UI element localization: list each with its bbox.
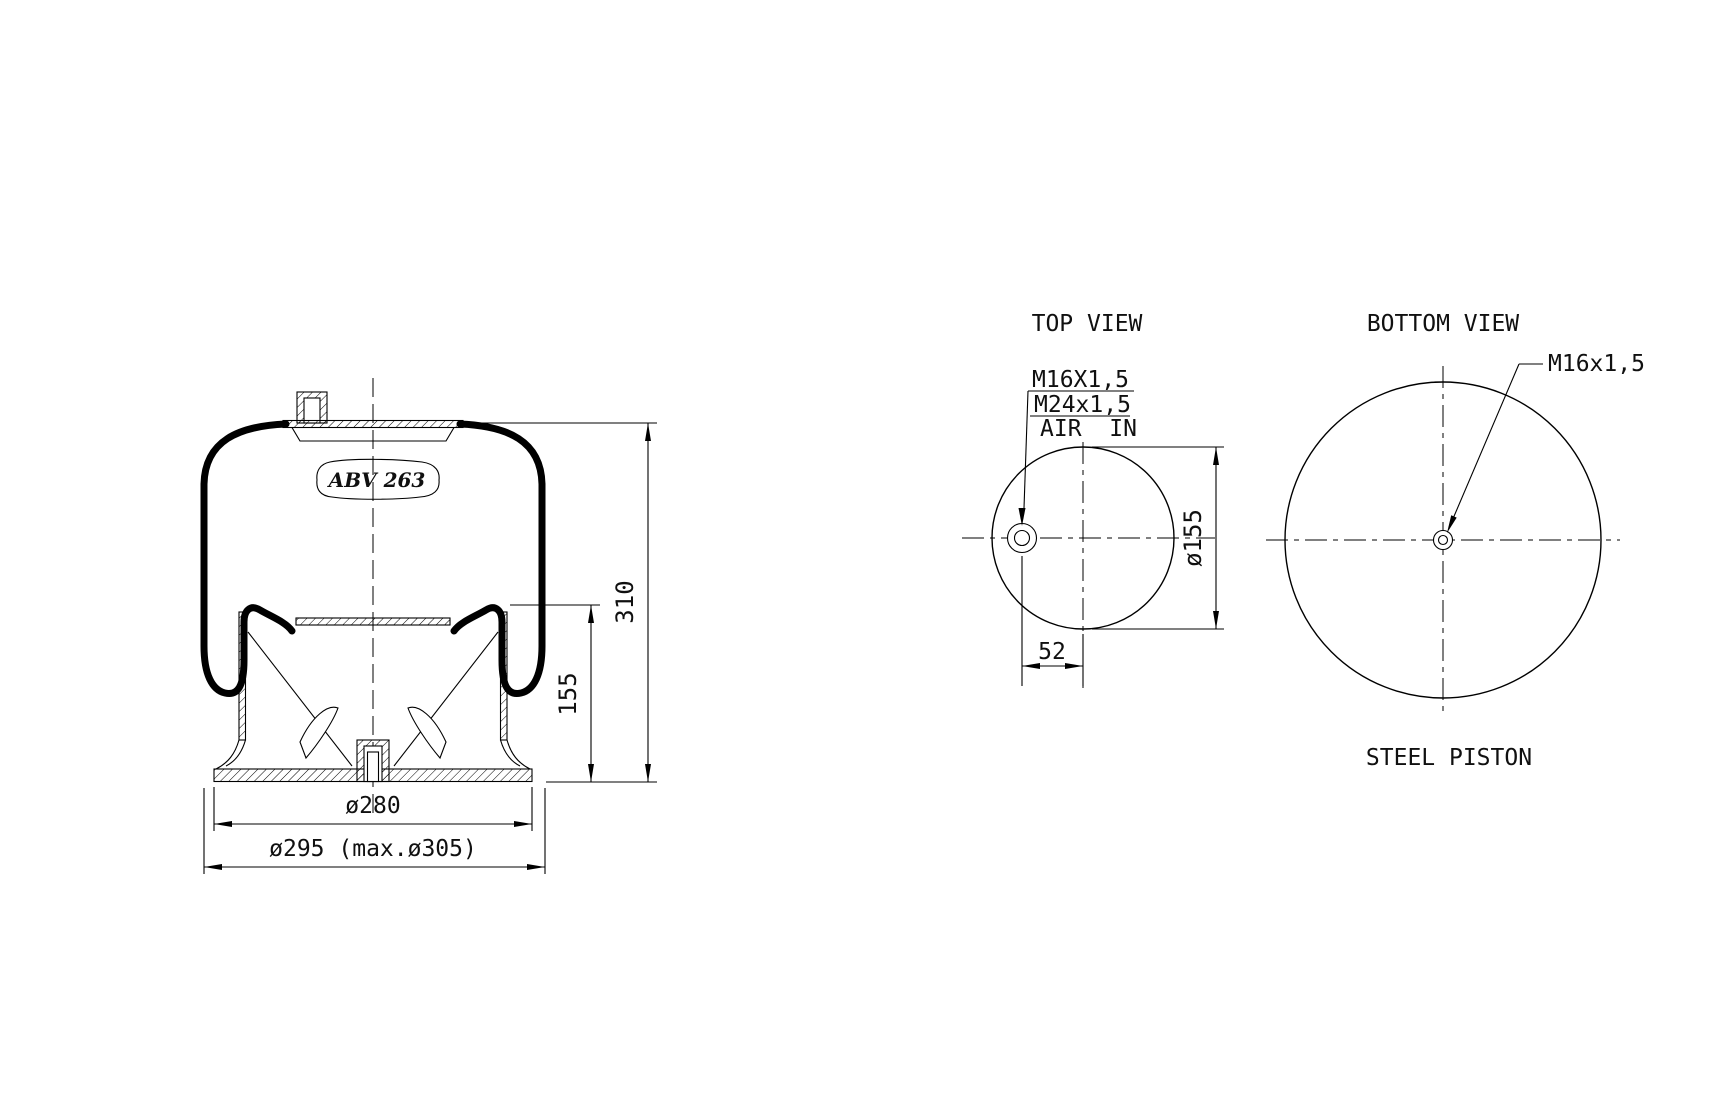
top-view-title: TOP VIEW <box>1032 311 1143 337</box>
side-view-drawing: ABV 263 <box>204 378 657 874</box>
dim-top-circle-diameter: ø155 <box>1179 509 1207 567</box>
steel-piston-caption: STEEL PISTON <box>1366 745 1532 771</box>
thread-size-m16-top: M16X1,5 <box>1032 367 1129 393</box>
thread-size-m24: M24x1,5 <box>1034 392 1131 418</box>
dim-max-diameter: ø295 (max.ø305) <box>269 836 477 862</box>
bottom-center-port <box>1434 531 1453 550</box>
dim-piston-height: 155 <box>554 672 582 715</box>
top-view-drawing: TOP VIEW M16X1,5 M24x1,5 AIR IN 52 <box>962 311 1224 688</box>
dim-310-group: 310 <box>466 423 657 782</box>
bottom-view-title: BOTTOM VIEW <box>1367 311 1519 337</box>
air-port <box>1008 524 1037 553</box>
top-stud <box>297 392 327 423</box>
dim-piston-diameter: ø280 <box>345 793 400 819</box>
bottom-view-drawing: BOTTOM VIEW M16x1,5 STEEL PISTON <box>1266 311 1645 771</box>
bottom-thread-callout: M16x1,5 <box>1447 351 1645 533</box>
air-inlet-label: AIR IN <box>1040 416 1137 442</box>
top-plate <box>283 421 463 428</box>
part-label-bubble: ABV 263 <box>317 459 439 499</box>
technical-drawing-canvas: ABV 263 <box>0 0 1723 1115</box>
air-spring-drawing: ABV 263 <box>0 0 1723 1115</box>
dim-52-group: 52 <box>1022 556 1083 686</box>
dim-port-offset: 52 <box>1038 639 1066 665</box>
dim-280-group: ø280 <box>214 787 532 831</box>
dim-total-height: 310 <box>611 580 639 623</box>
part-number-label: ABV 263 <box>327 468 426 492</box>
thread-size-m16-bottom: M16x1,5 <box>1548 351 1645 377</box>
